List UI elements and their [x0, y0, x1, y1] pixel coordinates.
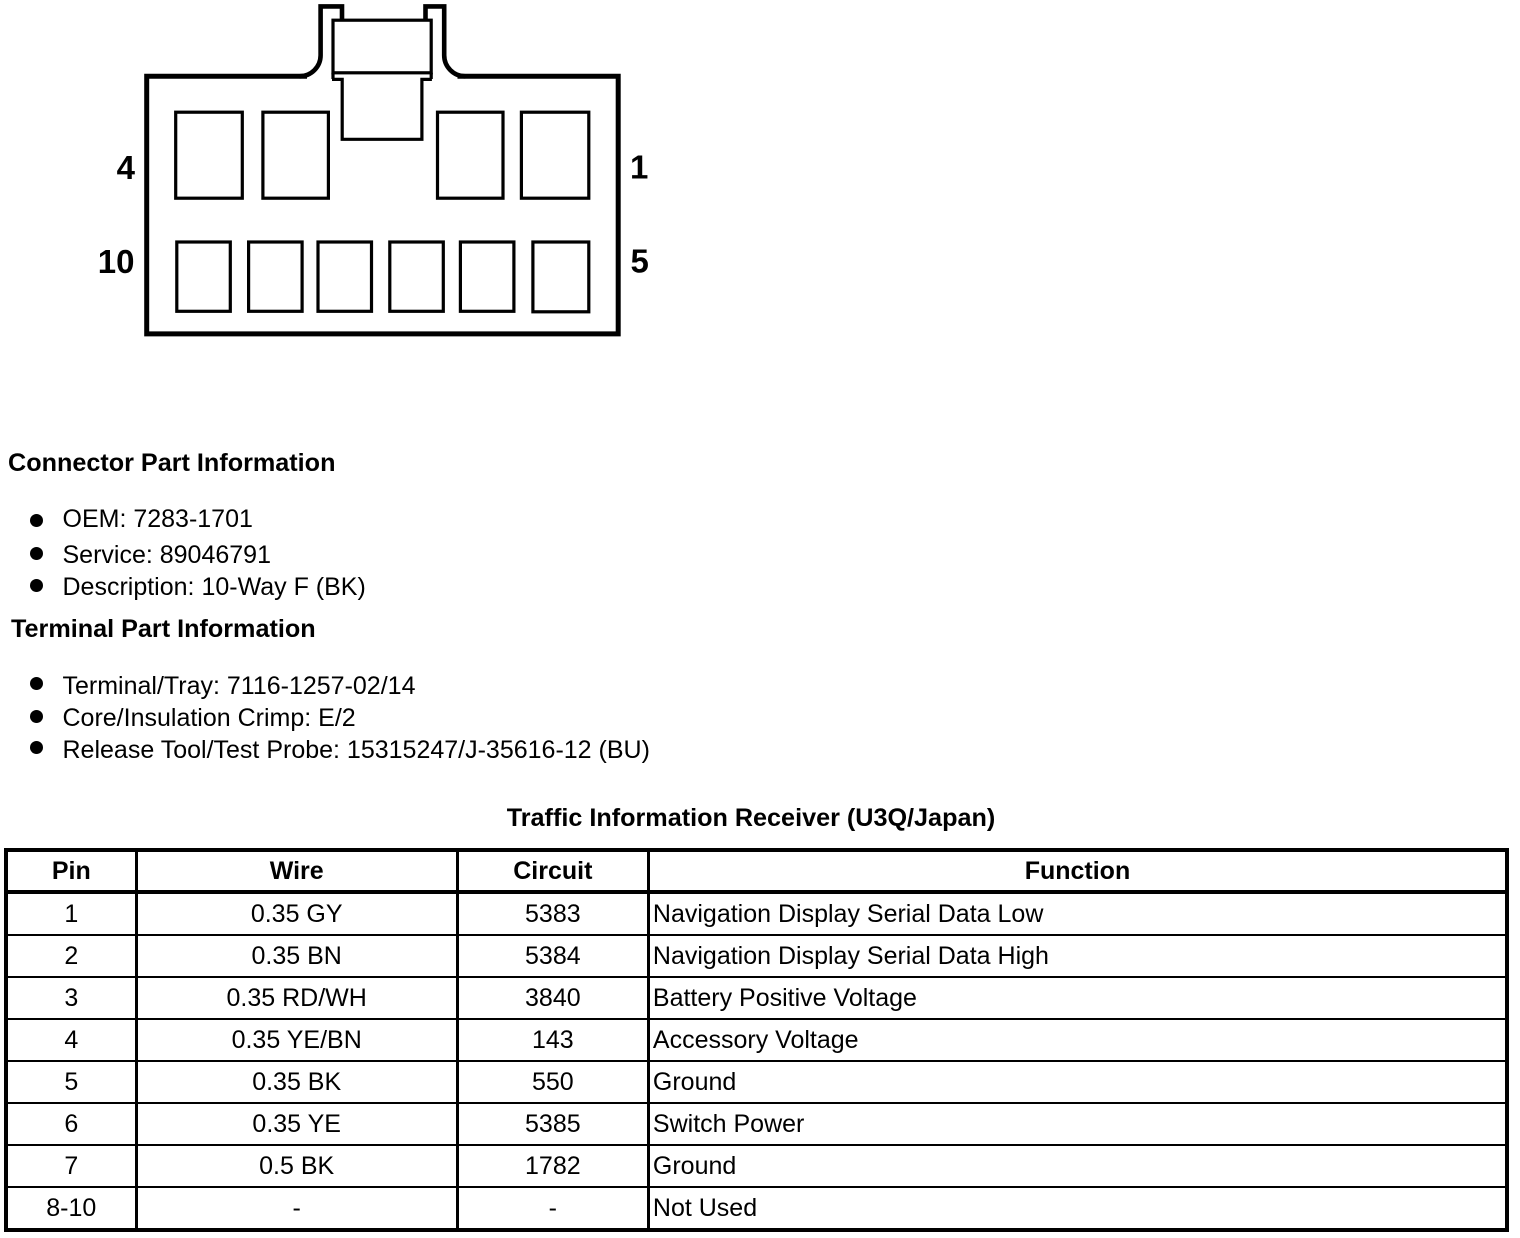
svg-text:1: 1 [630, 149, 648, 186]
svg-text:5: 5 [631, 243, 649, 280]
svg-text:4: 4 [117, 149, 136, 186]
svg-text:10: 10 [98, 243, 135, 280]
